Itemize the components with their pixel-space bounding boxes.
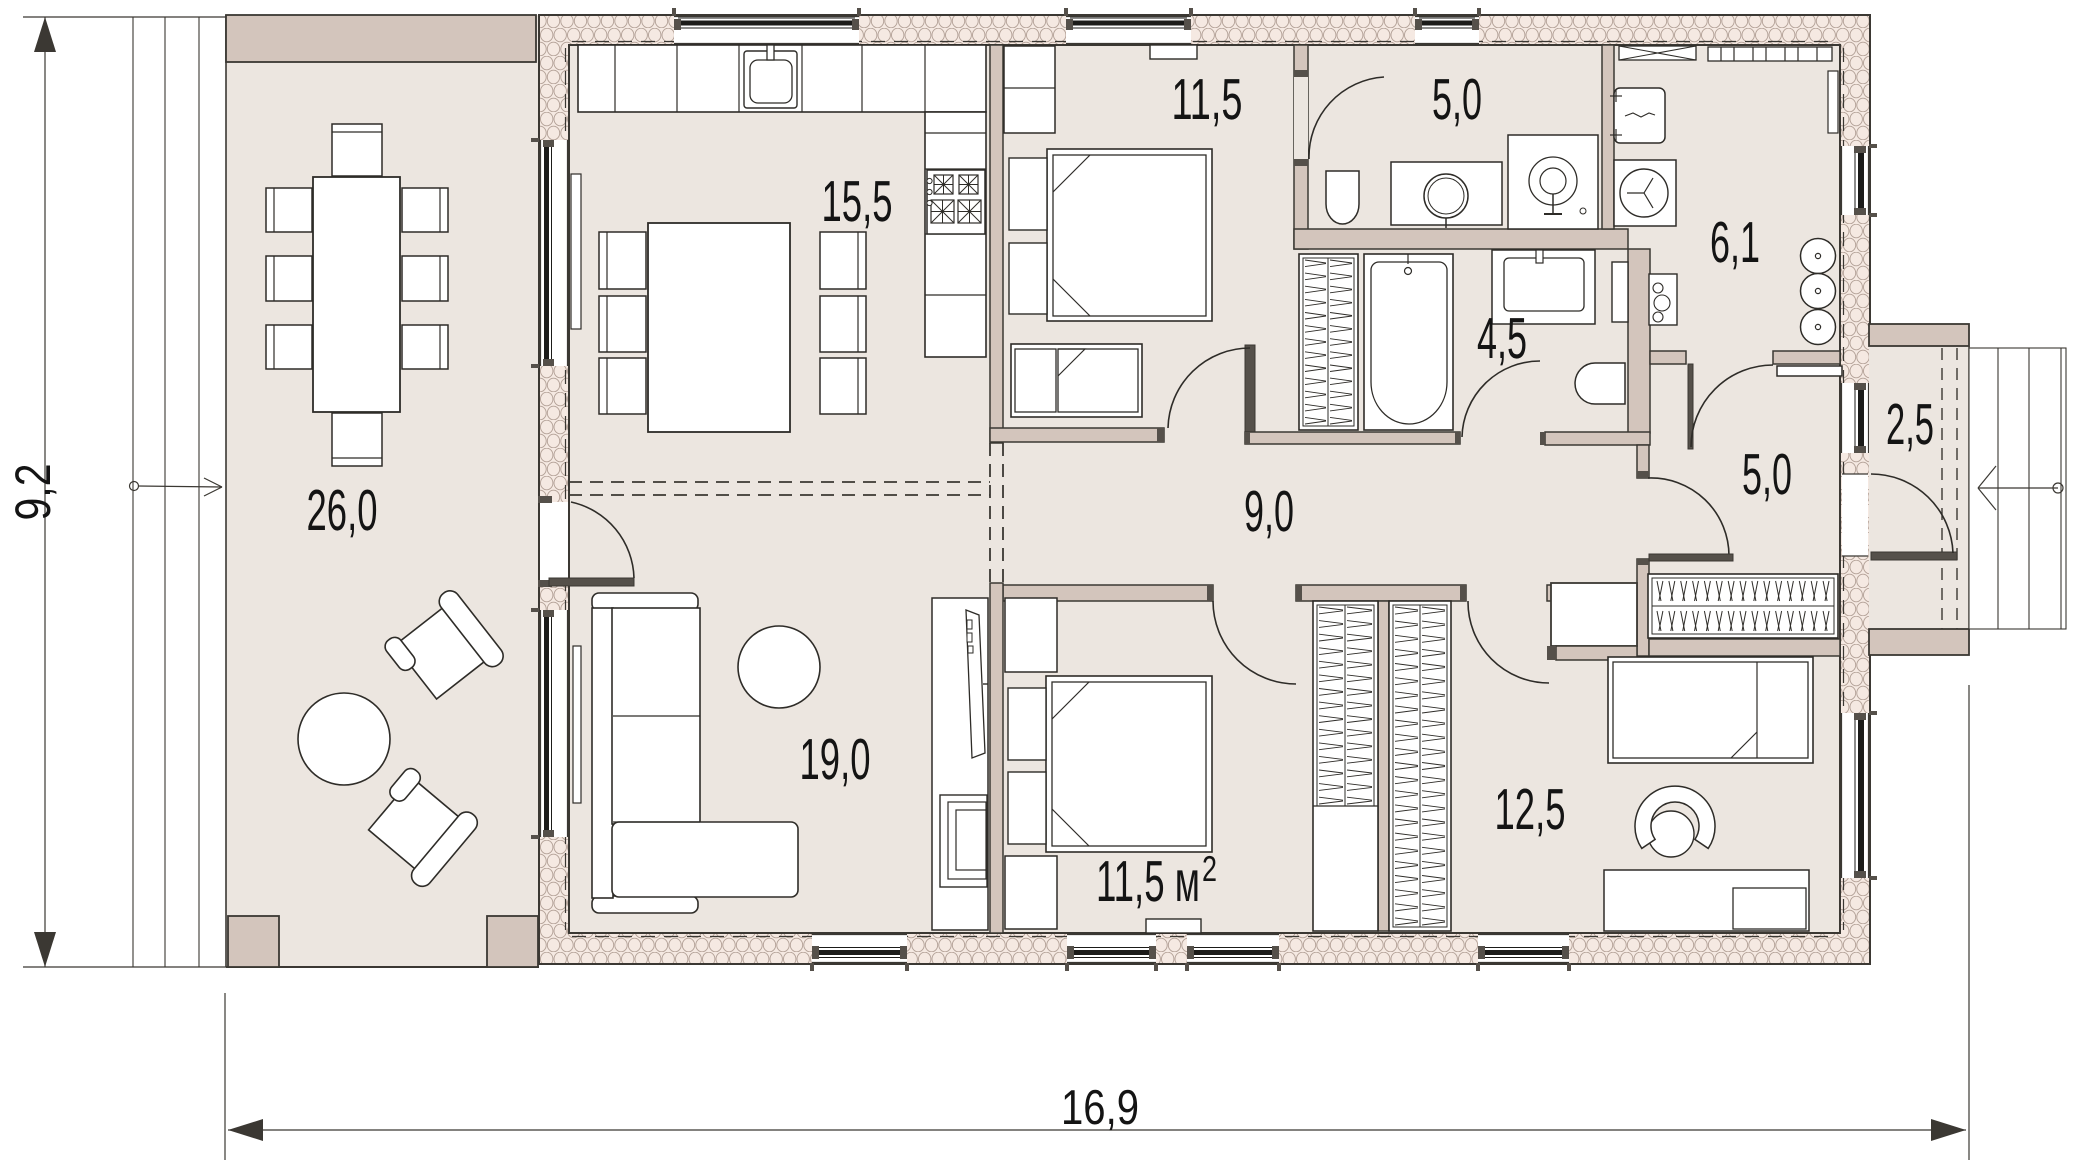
svg-text:19,0: 19,0: [800, 727, 871, 792]
svg-text:15,5: 15,5: [822, 169, 893, 234]
svg-text:12,5: 12,5: [1495, 777, 1566, 842]
svg-text:2,5: 2,5: [1886, 392, 1934, 457]
svg-text:16,9: 16,9: [1061, 1081, 1139, 1135]
svg-text:6,1: 6,1: [1710, 210, 1760, 275]
svg-text:4,5: 4,5: [1477, 306, 1527, 371]
svg-text:26,0: 26,0: [307, 478, 378, 543]
svg-text:11,5 м: 11,5 м: [1096, 849, 1200, 914]
svg-text:2: 2: [1202, 848, 1217, 889]
svg-text:5,0: 5,0: [1432, 67, 1482, 132]
svg-text:11,5: 11,5: [1172, 67, 1243, 132]
svg-text:9,2: 9,2: [5, 464, 61, 521]
svg-text:9,0: 9,0: [1244, 479, 1294, 544]
svg-text:5,0: 5,0: [1742, 442, 1792, 507]
